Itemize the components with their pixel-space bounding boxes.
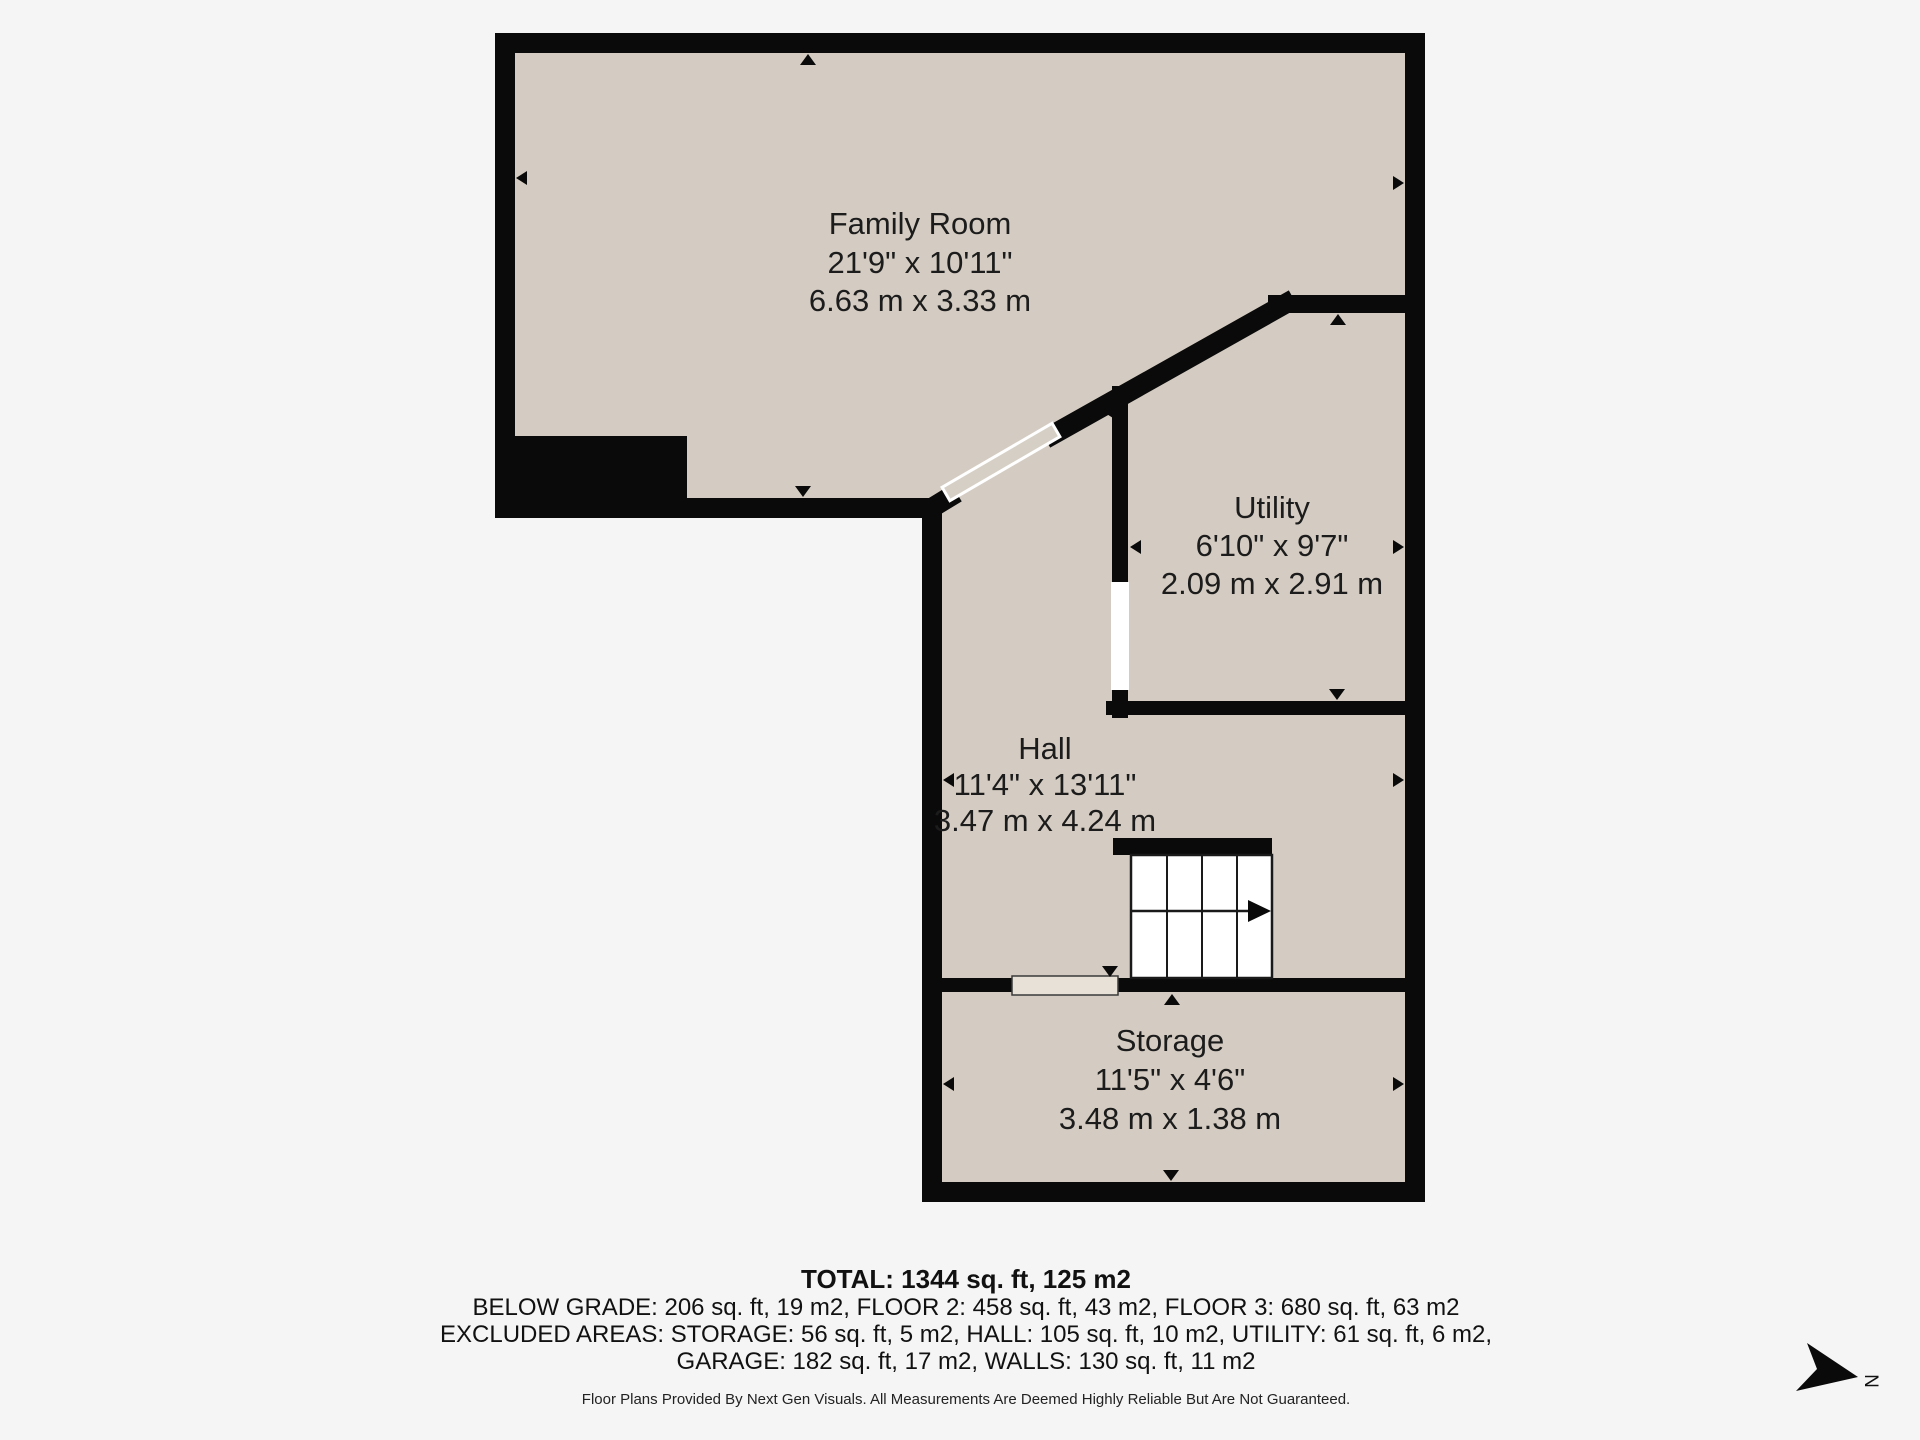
- hall-name: Hall: [1018, 731, 1071, 766]
- utility-imperial: 6'10" x 9'7": [1196, 528, 1349, 563]
- family-room-metric: 6.63 m x 3.33 m: [809, 283, 1031, 318]
- stairs: [1113, 838, 1272, 978]
- storage-name: Storage: [1116, 1023, 1225, 1058]
- utility-metric: 2.09 m x 2.91 m: [1161, 566, 1383, 601]
- summary-floors: BELOW GRADE: 206 sq. ft, 19 m2, FLOOR 2:…: [472, 1294, 1459, 1321]
- family-room-imperial: 21'9" x 10'11": [828, 245, 1013, 280]
- utility-name: Utility: [1234, 490, 1310, 525]
- diagonal-wall-lower: [930, 498, 948, 509]
- summary-disclaimer: Floor Plans Provided By Next Gen Visuals…: [582, 1391, 1350, 1408]
- room-label-family-room: Family Room 21'9" x 10'11" 6.63 m x 3.33…: [809, 206, 1031, 318]
- storage-imperial: 11'5" x 4'6": [1095, 1062, 1245, 1097]
- hall-imperial: 11'4" x 13'11": [954, 767, 1137, 802]
- summary-excluded: EXCLUDED AREAS: STORAGE: 56 sq. ft, 5 m2…: [440, 1321, 1492, 1348]
- floor-plan-canvas: Family Room 21'9" x 10'11" 6.63 m x 3.33…: [0, 0, 1920, 1440]
- hall-utility-door-opening: [1111, 582, 1129, 690]
- stairs-header-wall: [1113, 838, 1272, 855]
- storage-metric: 3.48 m x 1.38 m: [1059, 1101, 1281, 1136]
- hall-storage-door: [1012, 976, 1118, 995]
- summary-garage: GARAGE: 182 sq. ft, 17 m2, WALLS: 130 sq…: [677, 1348, 1256, 1375]
- hall-metric: 3.47 m x 4.24 m: [934, 803, 1156, 838]
- compass-label: N: [1860, 1374, 1881, 1388]
- family-room-name: Family Room: [829, 206, 1012, 241]
- summary-total: TOTAL: 1344 sq. ft, 125 m2: [801, 1264, 1131, 1294]
